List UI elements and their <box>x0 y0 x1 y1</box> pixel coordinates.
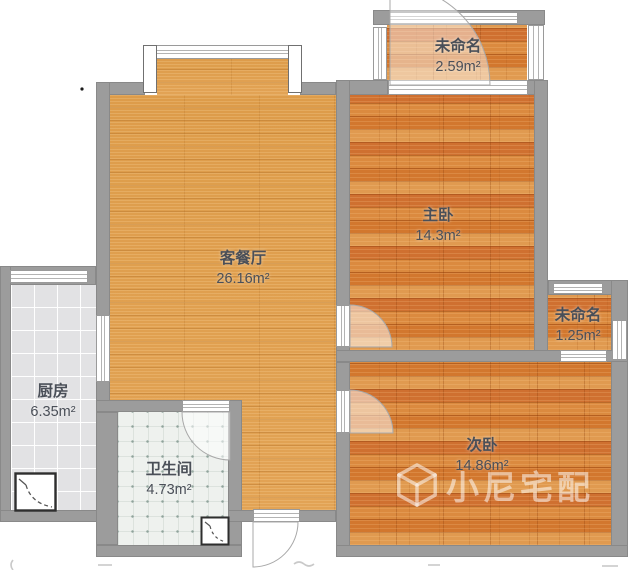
room-name: 次卧 <box>455 436 508 457</box>
storage-top-window <box>553 283 603 294</box>
floorplan-canvas: 客餐厅 26.16m² 主卧 14.3m² 次卧 14.86m² 厨房 6.35… <box>0 0 640 570</box>
room-name: 未命名 <box>555 306 602 327</box>
bay-window-frame-left <box>143 45 157 93</box>
watermark-text: 小尼宅配 <box>446 461 594 509</box>
label-master-bedroom: 主卧 14.3m² <box>415 206 460 246</box>
entry-door-arc <box>253 522 298 567</box>
balcony-right-window <box>528 25 544 80</box>
watermark: 小尼宅配 <box>394 461 594 509</box>
wall-master-right <box>534 80 548 362</box>
room-name: 厨房 <box>30 382 75 403</box>
bay-window-frame-right <box>288 45 302 93</box>
label-kitchen: 厨房 6.35m² <box>30 382 75 422</box>
wall-bathroom-bottom <box>96 545 242 557</box>
wall-bathroom-right <box>228 400 242 545</box>
master-bedroom-door-opening[interactable] <box>336 305 350 347</box>
balcony-top-window <box>389 12 518 24</box>
room-area: 2.59m² <box>435 58 482 78</box>
kitchen-window <box>10 270 88 283</box>
room-area: 14.3m² <box>415 227 460 247</box>
wall-living-top-right <box>300 82 336 95</box>
room-area: 6.35m² <box>30 403 75 423</box>
storage-right-window <box>612 320 627 360</box>
wall-second-bottom <box>336 545 628 557</box>
room-area: 26.16m² <box>216 270 269 290</box>
room-name: 卫生间 <box>146 460 193 481</box>
bay-window-floor <box>157 58 288 95</box>
balcony-left-window <box>373 27 387 80</box>
room-name: 客餐厅 <box>216 249 269 270</box>
balcony-sill-window <box>388 80 528 95</box>
speck-artifact <box>80 87 83 90</box>
room-area: 4.73m² <box>146 481 193 501</box>
entry-door-opening[interactable] <box>253 509 300 522</box>
second-bedroom-door-opening[interactable] <box>336 390 350 433</box>
label-bathroom: 卫生间 4.73m² <box>146 460 193 500</box>
room-area: 1.25m² <box>555 327 602 347</box>
dimension-marks <box>11 560 618 570</box>
storage-second-window <box>560 350 607 362</box>
bay-window <box>155 45 289 59</box>
room-name: 主卧 <box>415 206 460 227</box>
room-name: 未命名 <box>435 37 482 58</box>
wall-kitchen-left <box>0 266 11 522</box>
label-balcony-unnamed: 未命名 2.59m² <box>435 37 482 77</box>
cube-logo-icon <box>394 462 440 508</box>
label-living-dining: 客餐厅 26.16m² <box>216 249 269 289</box>
kitchen-sliding-door[interactable] <box>96 315 110 382</box>
bathroom-door-opening[interactable] <box>182 400 230 412</box>
label-storage-unnamed: 未命名 1.25m² <box>555 306 602 346</box>
wall-bathroom-left <box>96 412 118 545</box>
